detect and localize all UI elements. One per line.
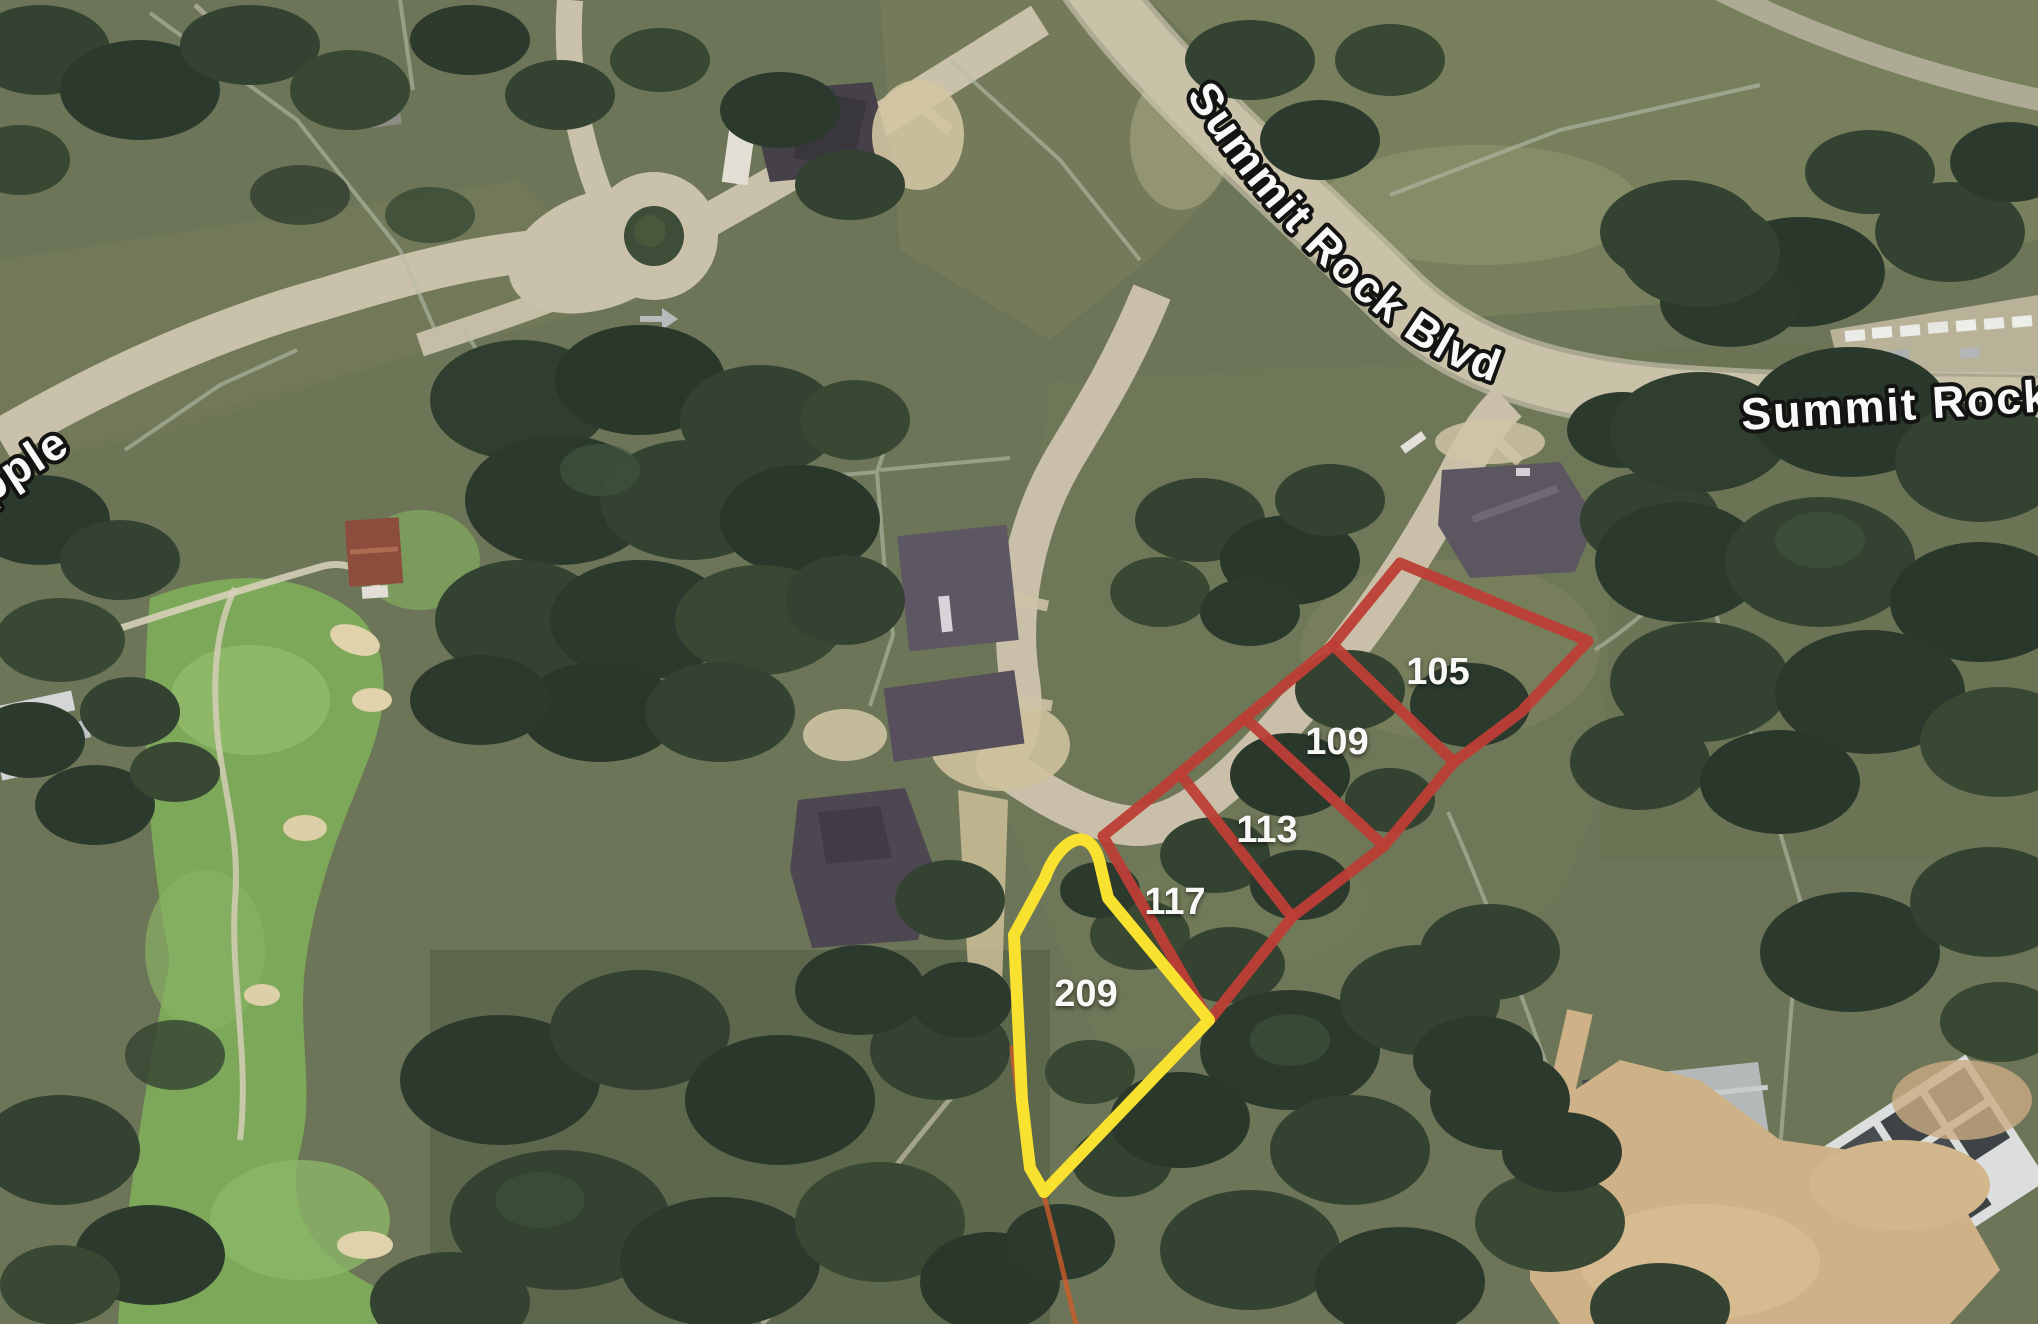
atmosphere-overlay — [0, 0, 2038, 1324]
map-canvas[interactable]: 105 109 113 117 209 Summit Rock Blvd Sum… — [0, 0, 2038, 1324]
